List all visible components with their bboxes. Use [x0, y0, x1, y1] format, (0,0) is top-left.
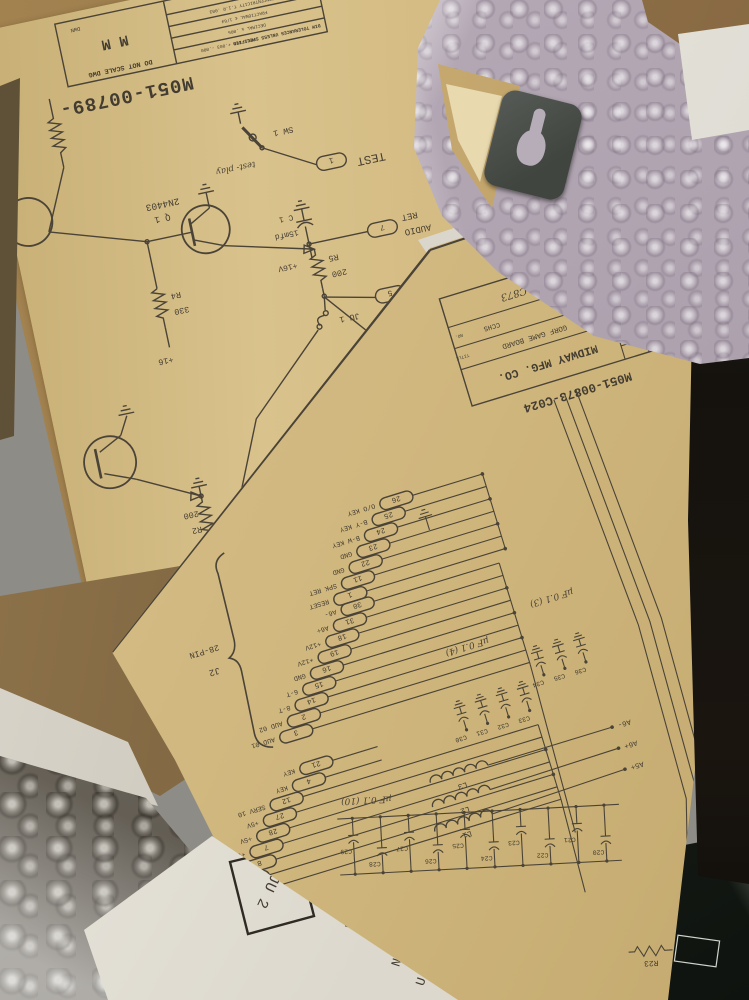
- cap-plate-curved: [479, 709, 489, 715]
- ground-bar: [456, 701, 460, 702]
- cap-plate: [460, 829, 470, 830]
- cap-lead: [523, 688, 525, 695]
- cap-junction: [437, 868, 440, 871]
- pin-label: B-W KEY: [331, 533, 361, 549]
- r4-value: 330: [173, 304, 190, 317]
- pin-number: 8: [256, 858, 263, 867]
- pin7-label-ret: RET: [400, 209, 419, 222]
- cap-plate: [572, 823, 582, 824]
- pin-number: 24: [374, 525, 385, 535]
- cap-label: C26: [425, 857, 437, 865]
- cap-leg: [527, 701, 530, 711]
- caps-note-3: μF 0.1 (3): [528, 586, 575, 610]
- pin-label: KEY: [274, 783, 288, 794]
- pin-label: A6+: [315, 623, 329, 634]
- j2-pin-count: 28-PIN: [188, 642, 220, 661]
- pin-number: 7: [263, 842, 270, 851]
- cap-label: C29: [340, 847, 352, 855]
- cap-junction: [574, 805, 577, 808]
- pin-number: 1: [346, 589, 353, 598]
- dwn-label: DWN: [70, 25, 81, 34]
- pin-number: 4: [305, 776, 312, 785]
- pin-wire: [382, 524, 498, 559]
- pin-number: 23: [367, 541, 378, 551]
- cap-label: C20: [592, 848, 604, 856]
- r5-value: 200: [331, 266, 348, 279]
- j2-name: J2: [207, 665, 221, 679]
- net-a6-plus: A6+: [622, 738, 638, 750]
- photo-of-schematic-sheets: M M DWN DO NOT SCALE DWG DATE CONCENTRIC…: [0, 0, 749, 1000]
- cap-label: C31: [475, 727, 488, 737]
- cap-plate-curved: [535, 661, 545, 667]
- cap-junction: [351, 817, 354, 820]
- cap-lead: [537, 652, 539, 659]
- ladder-leg: [352, 818, 353, 835]
- pin-label: +5V: [238, 834, 253, 845]
- cap-plate: [348, 835, 358, 836]
- sw1-label: SW 1: [272, 124, 294, 138]
- cap-plate: [377, 848, 387, 849]
- cap-plate: [489, 842, 499, 843]
- pin-wire: [269, 787, 557, 875]
- ladder-leg: [604, 805, 606, 836]
- cap-junction: [379, 815, 382, 818]
- pin-number: 12: [281, 794, 292, 804]
- pin5-number: 5: [386, 287, 393, 297]
- pin-number: 21: [310, 758, 321, 768]
- cap-junction: [602, 803, 605, 806]
- title-label: TITLE: [455, 352, 470, 362]
- ladder-leg: [436, 814, 438, 845]
- tol-row-2: DECIMAL ± .005: [227, 21, 266, 35]
- ladder-leg: [577, 831, 579, 863]
- board-title: GORF GAME BOARD: [500, 322, 567, 350]
- cap-junction: [434, 812, 437, 815]
- cap-cluster-4: C30C31C32C33: [445, 680, 539, 743]
- pin-label: GND: [292, 671, 306, 682]
- ladder-leg: [354, 842, 356, 874]
- cap-plate: [516, 826, 526, 827]
- cap-junction: [409, 870, 412, 873]
- cap-label: C36: [574, 665, 587, 675]
- ladder-leg: [494, 849, 495, 867]
- cap-plate-curved: [577, 648, 587, 654]
- pin-number: 30: [351, 599, 362, 609]
- cap-junction: [605, 859, 608, 862]
- pin-label: GND: [339, 549, 353, 560]
- bracket-keyhole: [513, 127, 549, 169]
- pin1-number: 1: [328, 155, 335, 165]
- pin-number: 31: [343, 615, 354, 625]
- pin-label: +12V: [295, 655, 314, 668]
- r2-label: R2: [191, 524, 203, 536]
- pin-label: SERV 10: [237, 802, 267, 818]
- r5-label: R5: [327, 251, 339, 263]
- cap-leg: [583, 652, 586, 662]
- ladder-leg: [465, 836, 467, 868]
- ground-bar: [519, 681, 523, 682]
- ladder-leg: [409, 839, 411, 871]
- pin-number: 28: [267, 826, 278, 836]
- pin1-label: TEST: [355, 148, 386, 168]
- ladder-leg: [438, 852, 439, 870]
- pin-number: 11: [351, 573, 362, 583]
- pin-number: 15: [313, 679, 324, 689]
- pin-label: 6-T: [285, 687, 299, 698]
- q1-label: Q 1: [153, 211, 171, 224]
- pin-wire: [366, 575, 503, 617]
- ground-bar: [574, 635, 582, 637]
- ladder-leg: [548, 808, 550, 839]
- cap-junction: [354, 873, 357, 876]
- pin-label: GND: [331, 565, 345, 576]
- pin-label: O/O KEY: [346, 501, 376, 517]
- r23-label: R23: [644, 958, 659, 968]
- ground-bar: [497, 690, 505, 692]
- cap-label: C28: [369, 860, 381, 868]
- pin-number: 16: [320, 663, 331, 673]
- pin-number: 27: [274, 810, 285, 820]
- r2-value: 200: [183, 508, 200, 521]
- net-a5-plus: A5+: [629, 759, 645, 771]
- pin-label: +12V: [303, 639, 322, 652]
- cap-label: C32: [496, 720, 509, 730]
- cap-junction: [549, 862, 552, 865]
- cap-leg: [464, 720, 467, 730]
- pin-number: 22: [360, 557, 371, 567]
- pin-label: B-Y KEY: [339, 517, 369, 533]
- ground-bar: [532, 648, 540, 650]
- cap-leg: [506, 707, 509, 717]
- cap-lead: [481, 700, 483, 707]
- pin-wire: [413, 474, 483, 495]
- ladder-leg: [382, 855, 383, 873]
- ladder-leg: [606, 843, 607, 861]
- cap-label: C35: [553, 672, 566, 682]
- cap-junction: [546, 806, 549, 809]
- sheet2-part-number: M051-00873-C024: [521, 368, 633, 414]
- c1-value: 15mfd: [274, 227, 300, 241]
- cap-junction: [407, 814, 410, 817]
- ground-bar: [476, 696, 484, 698]
- r4-label: R4: [170, 289, 182, 301]
- cap-leg: [485, 714, 488, 724]
- coil-l3-label: L3: [456, 779, 468, 790]
- cap-lead: [579, 639, 581, 646]
- cap-leg: [541, 665, 544, 675]
- cap-label: C23: [508, 839, 520, 847]
- pin7-label-audio: AUDIO: [404, 221, 433, 236]
- pin-number: 3: [292, 727, 299, 736]
- ladder-leg: [521, 833, 523, 865]
- ju1-label: JU 1: [338, 310, 360, 324]
- initials: M M: [100, 30, 130, 52]
- pin-label: A6-: [323, 607, 337, 618]
- cap-junction: [521, 864, 524, 867]
- pin-number: 18: [336, 631, 347, 641]
- net-a6-minus: A6-: [616, 717, 631, 729]
- cap-lead: [558, 645, 560, 652]
- q1-type: 2N4403: [144, 195, 180, 213]
- cap-cluster-3: C34C35C36: [522, 632, 595, 689]
- cap-plate-curved: [500, 703, 510, 709]
- ground-bar: [498, 688, 502, 689]
- cap-plate-curved: [458, 716, 468, 722]
- r23-resistor: R23: [628, 945, 673, 968]
- pin7-number: 7: [379, 222, 386, 232]
- ground-bar: [575, 633, 579, 634]
- cap-label: C34: [532, 678, 545, 688]
- cap-label: C33: [517, 714, 530, 724]
- pin-wire: [320, 650, 526, 713]
- ladder-leg: [576, 807, 577, 824]
- cap-plate-curved: [521, 697, 531, 703]
- pin-number: 14: [305, 695, 316, 705]
- cap-lead: [460, 707, 462, 714]
- pin-label: AUD 02: [258, 719, 284, 734]
- ladder-leg: [408, 815, 409, 832]
- ground-bar: [455, 703, 463, 705]
- cap-label: C25: [452, 842, 464, 850]
- cap-plate: [433, 845, 443, 846]
- ground-bar: [553, 641, 561, 643]
- code-cchs: CCHS: [482, 320, 500, 333]
- cap-label: C24: [481, 854, 493, 862]
- cap-label: C30: [454, 733, 467, 743]
- c1-voltage: +16V: [277, 260, 298, 273]
- pin-label: SPK RET: [308, 581, 338, 597]
- pin-number: 19: [329, 647, 340, 657]
- pin-number: 26: [390, 493, 401, 503]
- pin-label: KEY: [282, 766, 296, 777]
- cap-label: C21: [564, 836, 576, 844]
- pins-top: 26O/O KEY25B-Y KEY24B-W KEY23GND22GND11S…: [285, 468, 507, 614]
- ground-bar: [533, 646, 537, 647]
- plus16-label: +16: [157, 354, 174, 367]
- cap-junction: [465, 867, 468, 870]
- test-play-note: test- play: [215, 159, 256, 177]
- cap-junction: [518, 808, 521, 811]
- cap-junction: [381, 871, 384, 874]
- pin-wire: [397, 499, 490, 527]
- no-label: NO.: [454, 332, 464, 340]
- cap-label: C27: [396, 844, 408, 852]
- pin-wire: [328, 638, 522, 697]
- cap-plate-curved: [556, 654, 566, 660]
- sheet1-part-number: M051-00789-: [57, 71, 195, 121]
- ladder-leg: [380, 817, 382, 848]
- ladder-leg: [492, 811, 494, 842]
- cap-junction: [493, 865, 496, 868]
- cap-plate: [545, 839, 555, 840]
- caps-note-10: μF 0.1 (10): [340, 793, 392, 807]
- pin-wire: [333, 747, 378, 761]
- pin-number: 25: [382, 509, 393, 519]
- ladder-leg: [550, 846, 551, 864]
- ground-bar: [554, 639, 558, 640]
- cap-label: C22: [536, 851, 548, 859]
- pin-wire: [405, 486, 486, 511]
- pin-wire: [390, 511, 494, 543]
- cap-lead: [502, 694, 504, 701]
- pin-number: 2: [300, 711, 307, 720]
- pin-wire: [359, 588, 507, 633]
- pin-wire: [367, 549, 506, 591]
- pin-label: 8-T: [277, 703, 291, 714]
- ground-bar: [477, 694, 481, 695]
- pin-label: +5V: [245, 818, 260, 829]
- pins-mid: 30A6-31A6+18+12V19+12V16GND156-T148-T2AU…: [220, 557, 532, 753]
- c1-label: C 1: [278, 212, 294, 224]
- pin-label: RESET: [308, 597, 330, 611]
- pin-wire: [336, 625, 519, 681]
- cap-leg: [562, 659, 565, 669]
- cap-plate: [404, 832, 414, 833]
- cap-plate: [601, 836, 611, 837]
- ground-bar: [518, 684, 526, 686]
